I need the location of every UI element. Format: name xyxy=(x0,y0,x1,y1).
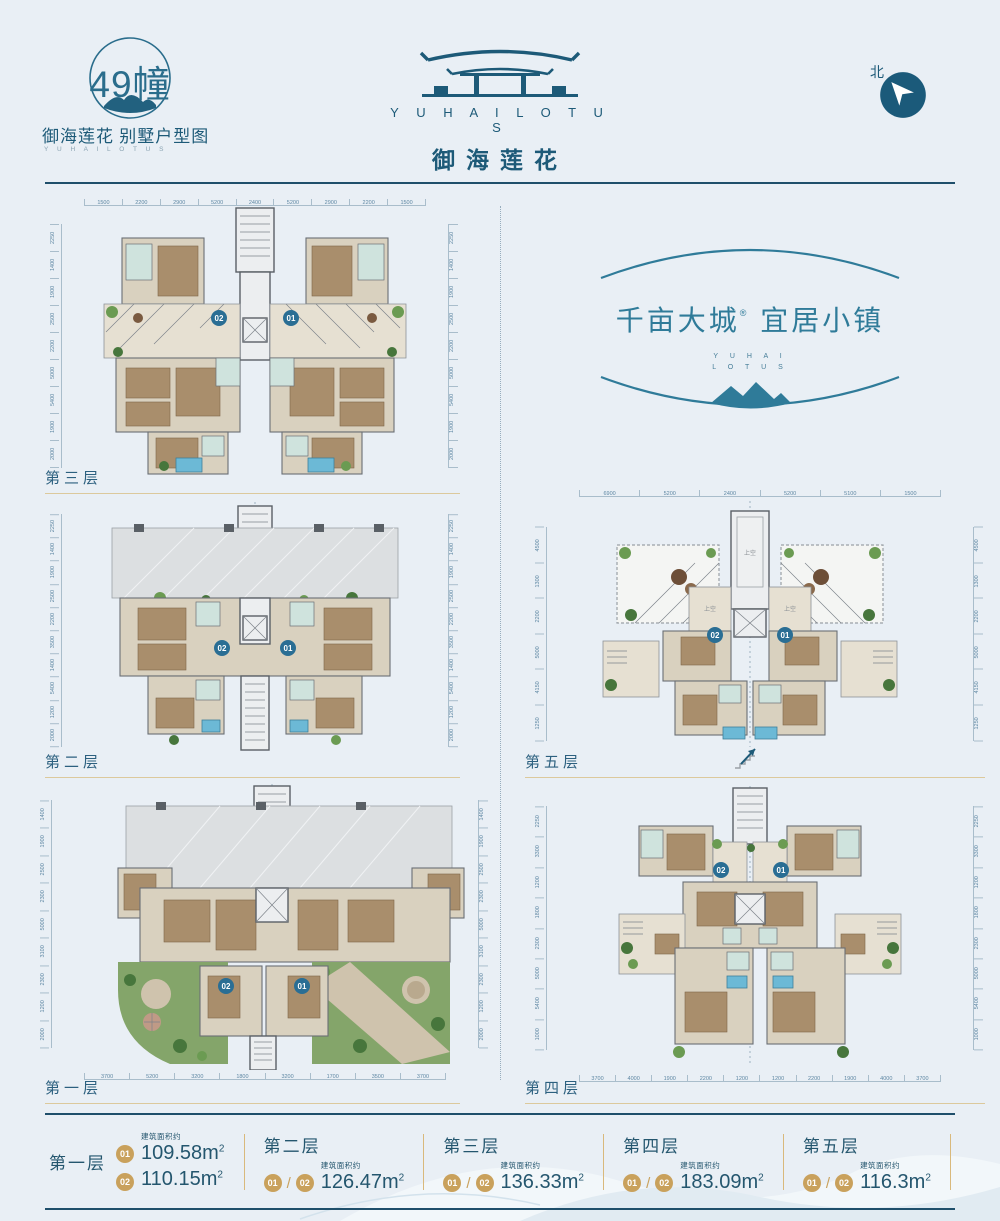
legend-group-floor1: 第一层 01 建筑面积约 109.58m2 02 110.15m2 xyxy=(49,1133,224,1191)
stairs-up-icon xyxy=(733,742,761,772)
dimension-chain-right: 2250140019002500220035001400540012002000 xyxy=(448,514,460,747)
unit-badge-01: 01 xyxy=(287,314,296,323)
dimension-value: 3300 xyxy=(535,836,544,866)
area-value: 136.33m2 xyxy=(501,1172,584,1192)
floor2-label: 第二层 xyxy=(45,751,460,778)
arc-bottom-mountain-icon xyxy=(585,373,915,425)
dimension-value: 2900 xyxy=(160,199,198,205)
dimension-value: 5400 xyxy=(974,988,983,1018)
dimension-chain-left: 22503300120018002300500054001000 xyxy=(535,806,547,1050)
floorplan-floor2: 2250140019002500220035001400540012002000… xyxy=(50,500,460,755)
dimension-value: 5400 xyxy=(449,386,458,413)
area-note: 建筑面积约 xyxy=(680,1162,763,1170)
dimension-value: 1400 xyxy=(40,800,49,827)
dimension-value: 1900 xyxy=(449,560,458,583)
dimension-value: 2200 xyxy=(50,607,59,630)
legend-group-floor3: 第三层 01 / 02 建筑面积约 136.33m2 xyxy=(443,1132,584,1192)
dimension-value: 1200 xyxy=(479,992,488,1019)
floorplan-floor1: 140019002500230050003100230012002000 140… xyxy=(40,780,490,1082)
dimension-value: 1800 xyxy=(535,897,544,927)
floorplan-floor3: 150022002900520024005200290022001500 225… xyxy=(50,196,460,476)
dimension-value: 2400 xyxy=(236,199,274,205)
dimension-value: 2500 xyxy=(50,584,59,607)
column-divider xyxy=(500,206,501,1080)
dimension-value: 4500 xyxy=(974,527,983,563)
dimension-chain-top: 150022002900520024005200290022001500 xyxy=(84,196,426,206)
legend-group-floor2: 第二层 01 / 02 建筑面积约 126.47m2 xyxy=(264,1132,405,1192)
dimension-value: 2300 xyxy=(974,928,983,958)
dimension-value: 2200 xyxy=(122,199,160,205)
brand-logo: Y U H A I L O T U S 御海莲花 xyxy=(390,40,610,175)
legend-separator xyxy=(423,1134,424,1190)
area-note: 建筑面积约 xyxy=(141,1133,224,1141)
dimension-value: 5400 xyxy=(50,676,59,699)
dimension-value: 1900 xyxy=(50,413,59,440)
dimension-value: 5200 xyxy=(273,199,311,205)
dimension-value: 1900 xyxy=(479,827,488,854)
dimension-value: 1400 xyxy=(449,537,458,560)
legend-separator xyxy=(783,1134,784,1190)
dimension-value: 1900 xyxy=(50,560,59,583)
dimension-value: 2250 xyxy=(449,224,458,251)
dimension-value: 5000 xyxy=(535,958,544,988)
dimension-value: 2000 xyxy=(449,723,458,747)
dimension-value: 2000 xyxy=(50,440,59,468)
dimension-chain-right: 450013002200500041501250 xyxy=(973,527,985,741)
floor4-label: 第四层 xyxy=(525,1077,985,1104)
dimension-value: 2200 xyxy=(535,598,544,634)
dimension-chain-top: 690052002400520051001500 xyxy=(579,487,941,497)
dimension-chain-left: 225014001900250022005000540019002000 xyxy=(50,224,62,468)
dimension-value: 1900 xyxy=(449,278,458,305)
dimension-value: 1300 xyxy=(535,563,544,599)
dimension-value: 1800 xyxy=(974,897,983,927)
dimension-value: 5400 xyxy=(535,988,544,1018)
dimension-value: 2500 xyxy=(479,855,488,882)
legend-floor-label: 第二层 xyxy=(264,1132,405,1157)
dimension-value: 2500 xyxy=(40,855,49,882)
area-value: 126.47m2 xyxy=(321,1172,404,1192)
dimension-value: 2200 xyxy=(50,332,59,359)
unit-badge-02: 02 xyxy=(717,866,726,875)
dimension-value: 2250 xyxy=(535,806,544,836)
unit-badge-02: 02 xyxy=(215,314,224,323)
area-note: 建筑面积约 xyxy=(501,1162,584,1170)
unit-badge: 02 xyxy=(476,1174,494,1192)
dimension-value: 5200 xyxy=(198,199,236,205)
brand-name-en: Y U H A I L O T U S xyxy=(390,105,610,135)
dimension-value: 1250 xyxy=(535,705,544,742)
pavilion-icon xyxy=(390,40,610,98)
page-title-en: Y U H A I L O T U S xyxy=(44,146,244,153)
dimension-value: 2200 xyxy=(449,607,458,630)
arc-top xyxy=(585,236,915,280)
floorplan-drawing: 02 01 xyxy=(64,502,446,754)
dimension-value: 2300 xyxy=(479,882,488,909)
unit-badge: 01 xyxy=(443,1174,461,1192)
void-label-center: 上空 xyxy=(744,549,756,557)
dimension-chain-right: 22503300120018002300500054001000 xyxy=(973,806,985,1050)
dimension-value: 4150 xyxy=(535,669,544,705)
slogan-text: 千亩大城® 宜居小镇 xyxy=(585,299,915,339)
dimension-value: 2300 xyxy=(40,882,49,909)
north-indicator: 北 xyxy=(862,58,932,128)
legend-group-floor4: 第四层 01 / 02 建筑面积约 183.09m2 xyxy=(623,1132,764,1192)
dimension-value: 3100 xyxy=(479,937,488,964)
dimension-value: 3500 xyxy=(50,630,59,653)
building-number-badge: 49幢 xyxy=(50,34,210,126)
legend-floor-label: 第五层 xyxy=(803,1132,931,1157)
dimension-value: 1500 xyxy=(84,199,122,205)
dimension-value: 5100 xyxy=(820,490,880,496)
area-note: 建筑面积约 xyxy=(321,1162,404,1170)
dimension-value: 3100 xyxy=(40,937,49,964)
unit-badge: 02 xyxy=(835,1174,853,1192)
dimension-value: 1200 xyxy=(50,700,59,723)
dimension-value: 2500 xyxy=(449,305,458,332)
dimension-value: 2250 xyxy=(449,514,458,537)
floorplan-drawing: 02 01 xyxy=(60,784,470,1070)
dimension-value: 3300 xyxy=(974,836,983,866)
dimension-value: 2250 xyxy=(974,806,983,836)
slogan-left: 千亩大城 xyxy=(616,305,740,336)
dimension-value: 1400 xyxy=(479,800,488,827)
dimension-chain-left: 2250140019002500220035001400540012002000 xyxy=(50,514,62,747)
legend-separator xyxy=(950,1134,951,1190)
dimension-value: 2000 xyxy=(50,723,59,747)
brochure-page: 49幢 御海莲花 别墅户型图 Y U H A I L O T U S Y U H… xyxy=(0,0,1000,1221)
dimension-value: 4150 xyxy=(974,669,983,705)
dimension-value: 1900 xyxy=(40,827,49,854)
dimension-value: 2300 xyxy=(535,928,544,958)
dimension-value: 1200 xyxy=(974,867,983,897)
dimension-value: 1000 xyxy=(974,1019,983,1050)
dimension-value: 2400 xyxy=(699,490,759,496)
dimension-value: 2200 xyxy=(974,598,983,634)
unit-badge-01: 01 xyxy=(777,866,786,875)
dimension-value: 2500 xyxy=(50,305,59,332)
dimension-value: 1400 xyxy=(50,537,59,560)
dimension-value: 1400 xyxy=(449,251,458,278)
dimension-value: 1900 xyxy=(449,413,458,440)
page-title: 御海莲花 别墅户型图 xyxy=(42,122,242,147)
dimension-chain-right: 140019002500230050003100230012002000 xyxy=(478,800,490,1048)
dimension-value: 5000 xyxy=(974,958,983,988)
area-value: 183.09m2 xyxy=(680,1172,763,1192)
dimension-value: 1000 xyxy=(535,1019,544,1050)
dimension-chain-left: 450013002200500041501250 xyxy=(535,527,547,741)
dimension-value: 5000 xyxy=(50,359,59,386)
dimension-value: 1400 xyxy=(449,653,458,676)
floorplan-floor5: 690052002400520051001500 450013002200500… xyxy=(535,487,985,755)
unit-badge-01: 01 xyxy=(284,644,293,653)
dimension-value: 5200 xyxy=(639,490,699,496)
unit-badge: 02 xyxy=(296,1174,314,1192)
building-number: 49幢 xyxy=(50,54,210,108)
dimension-value: 1900 xyxy=(50,278,59,305)
dimension-value: 1250 xyxy=(974,705,983,742)
dimension-value: 5000 xyxy=(535,634,544,670)
brand-name-cn: 御海莲花 xyxy=(390,141,610,175)
unit-badge-01: 01 xyxy=(298,982,307,991)
dimension-value: 2300 xyxy=(479,965,488,992)
dimension-value: 2500 xyxy=(449,584,458,607)
area-note: 建筑面积约 xyxy=(860,1162,931,1170)
floorplan-floor4: 22503300120018002300500054001000 2250330… xyxy=(535,782,985,1084)
dimension-value: 1500 xyxy=(880,490,941,496)
dimension-value: 5400 xyxy=(449,676,458,699)
dimension-value: 5000 xyxy=(449,359,458,386)
dimension-value: 6900 xyxy=(579,490,639,496)
dimension-value: 2250 xyxy=(50,514,59,537)
unit-badge: 01 xyxy=(116,1145,134,1163)
unit-badge-02: 02 xyxy=(218,644,227,653)
dimension-value: 5000 xyxy=(40,910,49,937)
legend-group-floor5: 第五层 01 / 02 建筑面积约 116.3m2 xyxy=(803,1132,931,1192)
legend-floor-label: 第四层 xyxy=(623,1132,764,1157)
unit-badge: 01 xyxy=(803,1174,821,1192)
dimension-chain-right: 225014001900250022005000540019002000 xyxy=(448,224,460,468)
dimension-value: 2000 xyxy=(40,1020,49,1048)
floorplan-drawing: 上空 上空 上空 xyxy=(555,501,965,747)
unit-badge: 02 xyxy=(116,1173,134,1191)
dimension-value: 1200 xyxy=(535,867,544,897)
registered-mark: ® xyxy=(740,308,750,318)
dimension-value: 4500 xyxy=(535,527,544,563)
dimension-value: 3500 xyxy=(449,630,458,653)
dimension-value: 1500 xyxy=(387,199,426,205)
floorplan-drawing: 02 01 xyxy=(64,206,446,476)
dimension-value: 5000 xyxy=(974,634,983,670)
floor3-label: 第三层 xyxy=(45,467,460,494)
floor1-label: 第一层 xyxy=(45,1077,460,1104)
slogan-en: Y U H A I L O T U S xyxy=(585,351,915,373)
dimension-value: 2250 xyxy=(50,224,59,251)
area-value: 109.58m2 xyxy=(141,1143,224,1163)
dimension-value: 5000 xyxy=(479,910,488,937)
dimension-value: 2200 xyxy=(449,332,458,359)
dimension-value: 1300 xyxy=(974,563,983,599)
legend-floor-label: 第一层 xyxy=(49,1149,106,1174)
dimension-chain-left: 140019002500230050003100230012002000 xyxy=(40,800,52,1048)
legend-separator xyxy=(244,1134,245,1190)
dimension-value: 5400 xyxy=(50,386,59,413)
area-value: 110.15m2 xyxy=(141,1168,223,1191)
dimension-value: 2300 xyxy=(40,965,49,992)
dimension-value: 2900 xyxy=(311,199,349,205)
floorplan-drawing: 02 01 xyxy=(555,786,965,1066)
dimension-value: 2200 xyxy=(349,199,387,205)
slogan-right: 宜居小镇 xyxy=(760,305,884,336)
header-divider xyxy=(45,182,955,184)
legend-floor-label: 第三层 xyxy=(443,1132,584,1157)
area-value: 116.3m2 xyxy=(860,1172,931,1192)
dimension-value: 5200 xyxy=(760,490,820,496)
unit-badge-02: 02 xyxy=(222,982,231,991)
dimension-value: 1400 xyxy=(50,653,59,676)
unit-badge: 02 xyxy=(655,1174,673,1192)
dimension-value: 2000 xyxy=(479,1020,488,1048)
unit-badge: 01 xyxy=(264,1174,282,1192)
legend-separator xyxy=(603,1134,604,1190)
slogan-block: 千亩大城® 宜居小镇 Y U H A I L O T U S xyxy=(585,236,915,430)
area-legend: 第一层 01 建筑面积约 109.58m2 02 110.15m2 第二层 xyxy=(45,1113,955,1210)
void-label-left: 上空 xyxy=(704,605,716,613)
dimension-value: 1200 xyxy=(40,992,49,1019)
dimension-value: 1200 xyxy=(449,700,458,723)
unit-badge-01: 01 xyxy=(781,631,790,640)
dimension-value: 1400 xyxy=(50,251,59,278)
north-arrow-icon xyxy=(878,70,928,120)
dimension-value: 2000 xyxy=(449,440,458,468)
unit-badge: 01 xyxy=(623,1174,641,1192)
void-label-right: 上空 xyxy=(784,605,796,613)
unit-badge-02: 02 xyxy=(711,631,720,640)
